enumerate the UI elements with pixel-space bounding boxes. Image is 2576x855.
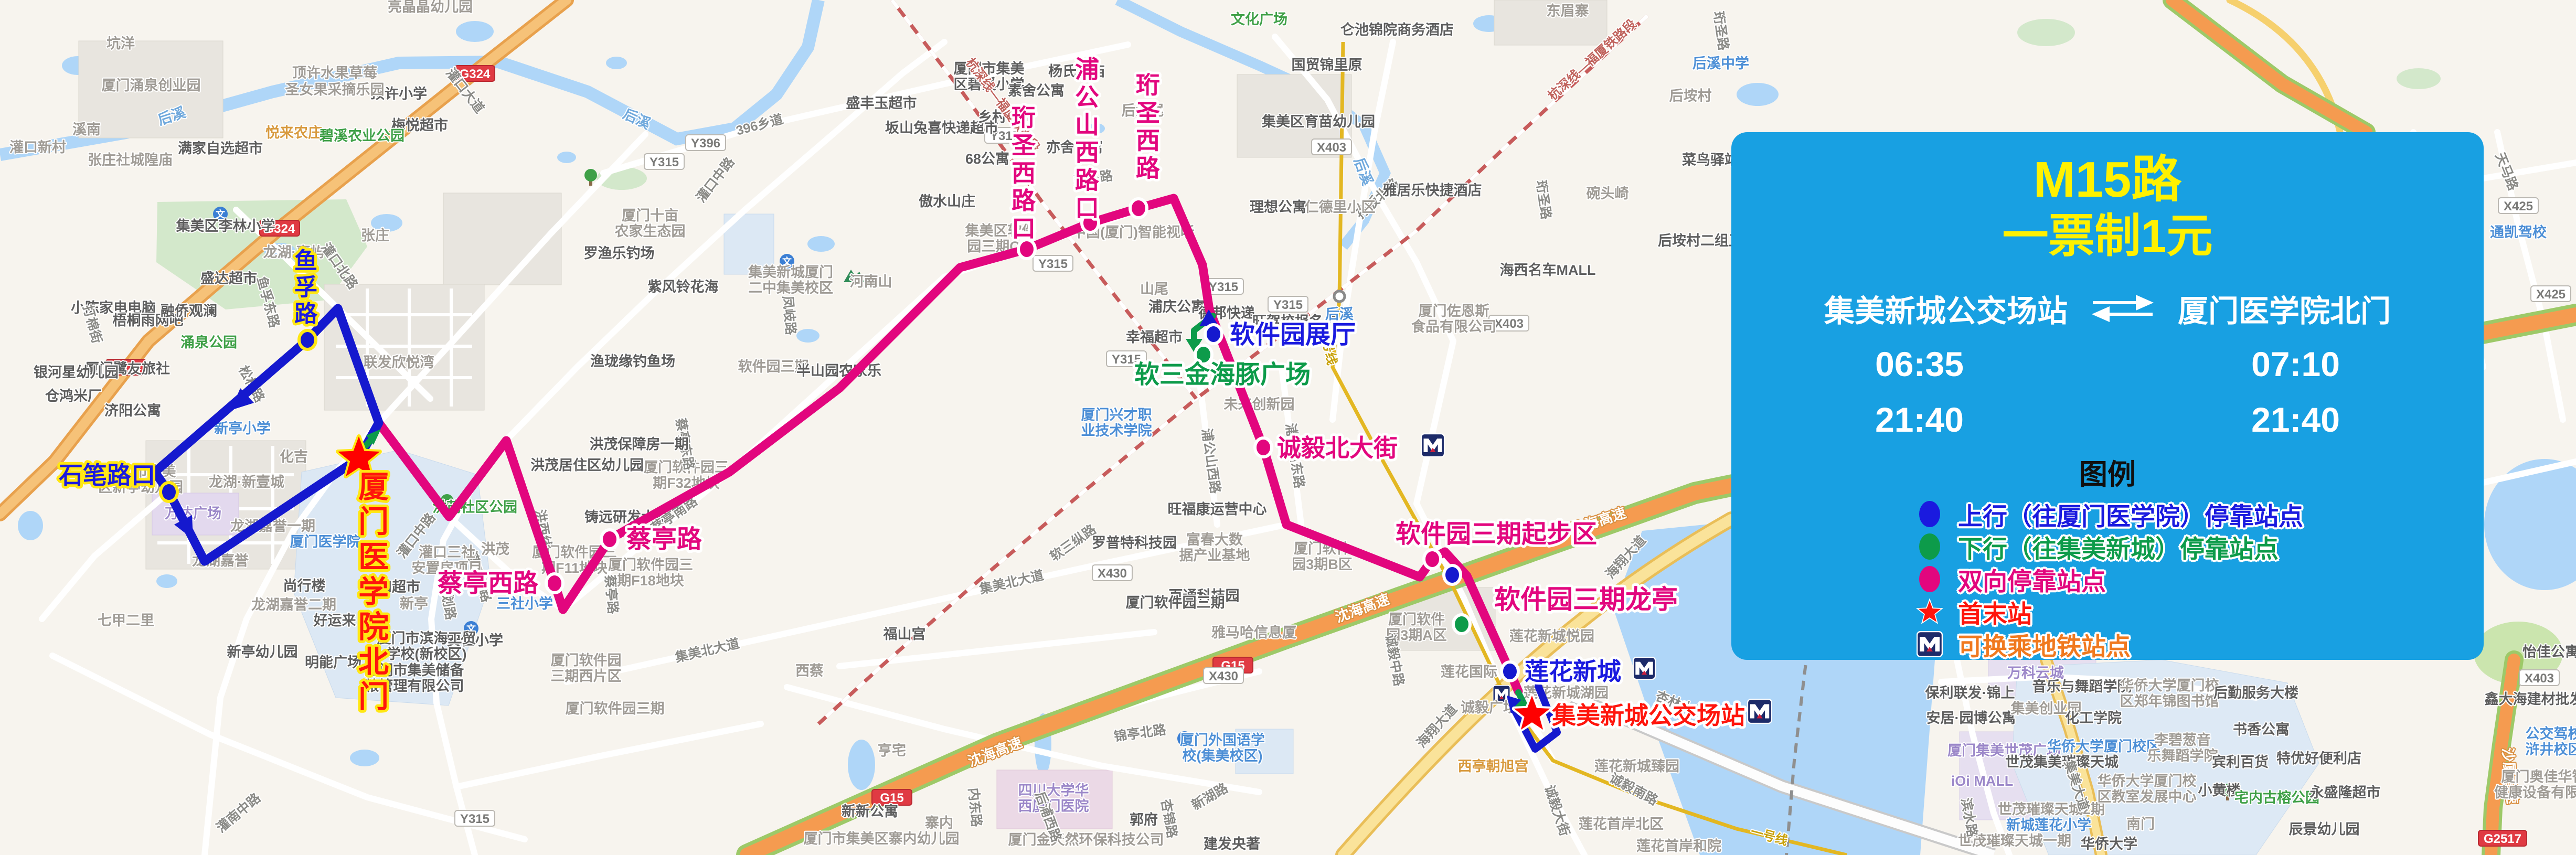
map-label: 三社小学	[496, 595, 553, 612]
map-label: 新亭幼儿园	[227, 644, 298, 660]
road-badge-text: Y315	[460, 812, 489, 826]
station-dot	[1444, 565, 1461, 584]
map-label: 后溪中学	[1693, 55, 1749, 71]
map-label: 音乐与舞蹈学院	[2032, 678, 2132, 694]
station-dot	[546, 574, 563, 593]
map-label: 济阳公寓	[104, 402, 161, 419]
map-label: 西亭朝旭宫	[1458, 758, 1529, 774]
station-label: 鱼孚路	[294, 248, 318, 327]
road-badge: X430	[1204, 668, 1243, 683]
map-label: 乐舞蹈学院	[2147, 747, 2218, 764]
legend-label: 双向停靠站点	[1958, 561, 2106, 597]
map-label: 圣女果采摘乐园	[285, 81, 385, 98]
map-label: 傲水山庄	[919, 193, 975, 209]
map-label: 集美区李林小学	[176, 218, 275, 234]
map-label: 三期西片区	[551, 668, 622, 684]
map-label: 罗普特科技园	[1092, 535, 1177, 551]
map-label: 厦门软件	[1388, 612, 1445, 627]
map-label: 后溪	[1325, 306, 1354, 322]
station-dot	[1453, 615, 1470, 634]
map-label: iOi MALL	[1951, 773, 2013, 789]
map-label: 素舍公寓	[1008, 82, 1065, 99]
map-label: 宅内古榕公园	[2234, 789, 2319, 806]
road-badge: X425	[2531, 286, 2571, 302]
map-label: 仁德里小区	[1305, 199, 1376, 215]
station-label: 软件园三期龙亭	[1494, 585, 1678, 614]
road-badge: X430	[1092, 565, 1132, 581]
map-label: 鑫大海建材批发	[2485, 691, 2576, 707]
map-label: 新亭	[400, 595, 428, 612]
map-label: 化工学院	[2065, 710, 2122, 726]
road-badge-text: Y315	[1209, 280, 1238, 294]
station-label: 莲花新城	[1525, 658, 1621, 685]
map-label: 涌泉公园	[180, 334, 237, 350]
map-label: 华侨大学厦门校区	[2047, 738, 2160, 754]
map-label: 区郑年锦图书馆	[2120, 693, 2219, 709]
legend-label: 下行（往集美新城）停靠站点	[1958, 529, 2279, 565]
map-label: 永盛隆超市	[2309, 784, 2381, 800]
map-label: 洪茂保障房一期	[590, 436, 689, 452]
map-label: 菜鸟驿站	[1681, 152, 1739, 168]
map-label: 特优好便利店	[2276, 751, 2361, 766]
map-label: 旺福康运营中心	[1168, 501, 1267, 517]
map-label: 怡佳公寓	[2522, 644, 2576, 660]
map-label: 渔珑缘钓鱼场	[590, 354, 675, 369]
map-label: 雅居乐快捷酒店	[1383, 183, 1482, 198]
map-label: 碧溪农业公园	[319, 128, 405, 144]
map-label: 龙湖·新壹城	[209, 474, 284, 490]
map-label: 碗头崎	[1587, 185, 1629, 201]
map-label: 坑洋	[107, 35, 135, 51]
road-badge-text: X403	[2525, 671, 2554, 686]
last-bus-left: 21:40	[1731, 400, 2107, 440]
station-dot	[1255, 438, 1272, 457]
road-badge-text: X403	[1494, 317, 1524, 331]
terminal-left-name: 集美新城公交场站	[1824, 286, 2068, 330]
map-label: 罗渔乐钓场	[584, 245, 655, 261]
road-badge: X425	[2498, 198, 2538, 213]
map-label: 仑池锦院商务酒店	[1340, 22, 1454, 38]
map-label: 宾利百货	[2212, 754, 2269, 770]
map-label: 洪茂居住区幼儿园	[530, 457, 644, 473]
map-label: 好运来	[313, 613, 356, 628]
map-label: 灌口新村	[9, 139, 66, 155]
map-label: 据产业基地	[1179, 548, 1250, 563]
map-label: 张庄社城隍庙	[88, 152, 173, 168]
legend-star-icon	[1916, 597, 1943, 626]
last-bus-right: 21:40	[2107, 400, 2484, 440]
station-dot	[601, 530, 618, 549]
road-badge-text: Y396	[691, 136, 720, 151]
map-label: 业技术学院	[1081, 422, 1152, 439]
legend-dot	[1919, 501, 1940, 527]
map-label: 李碧葱音	[2154, 732, 2211, 748]
legend-label: 上行（往厦门医学院）停靠站点	[1958, 496, 2303, 532]
map-label: 厦门医学院	[290, 533, 361, 550]
map-label: 辰景幼儿园	[2289, 821, 2360, 837]
road-badge-text: X430	[1098, 567, 1127, 581]
rail-station-icon	[1334, 291, 1345, 302]
map-label: 新新公寓	[842, 803, 898, 819]
map-label: 河南山	[850, 274, 892, 290]
map-label: 通凯驾校	[2490, 224, 2547, 240]
map-label: 未来创新园	[1224, 396, 1295, 412]
station-dot	[1424, 550, 1441, 569]
road-badge: Y315	[1033, 255, 1073, 271]
map-label: 世茂集美璀璨天城	[2005, 754, 2119, 770]
station-both: 浦公山西路口	[1075, 56, 1100, 232]
legend-list: 上行（往厦门医学院）停靠站点下行（往集美新城）停靠站点双向停靠站点首末站可换乘地…	[1916, 498, 2484, 660]
legend-item: 上行（往厦门医学院）停靠站点	[1916, 498, 2484, 530]
map-label: 莲花新城悦园	[1509, 628, 1594, 644]
station-label: 浦公山西路口	[1075, 56, 1100, 222]
map-label: 理想公寓	[1250, 199, 1306, 215]
map-label: 南门	[2126, 816, 2155, 832]
map-label: 银河星幼儿园	[34, 365, 119, 380]
road-badge-text: G2517	[2484, 832, 2521, 846]
map-label: 融侨观澜	[161, 303, 217, 319]
map-label: 浒井校区)	[2526, 741, 2576, 757]
station-label: 珩圣西路口	[1012, 104, 1036, 242]
route-name: M15路	[1731, 150, 2484, 209]
map-label: 龙湖嘉誉二期	[251, 597, 336, 613]
map-label: 四川大学华	[1018, 782, 1089, 798]
station-dot	[1018, 240, 1035, 259]
map-label: 明能广场	[305, 654, 361, 670]
legend-dot	[1919, 533, 1940, 560]
map-label: 雅马哈信息厦	[1211, 624, 1296, 640]
road-badge-text: X425	[2504, 199, 2533, 213]
first-bus-right: 07:10	[2107, 344, 2484, 384]
legend-item: 双向停靠站点	[1916, 563, 2484, 595]
legend-dot-icon	[1916, 501, 1943, 527]
map-label: 二中集美校区	[748, 280, 833, 296]
road-badge-text: X425	[2536, 287, 2566, 302]
map-label: 福山宫	[883, 626, 926, 642]
map-label: 联发欣悦湾	[364, 354, 434, 370]
legend-dot	[1919, 566, 1940, 592]
map-label: 保利联发·锦上	[1925, 685, 2015, 701]
station-label: 厦门医学院北门	[358, 470, 389, 714]
route-fare: 一票制1元	[1731, 209, 2484, 262]
map-label: 厦门软件园	[551, 653, 622, 668]
map-label: 后垵村	[1669, 88, 1712, 104]
map-label: 书香公寓	[2233, 721, 2290, 738]
map-label: 海西名车MALL	[1500, 262, 1596, 278]
legend-label: 可换乘地铁站点	[1958, 626, 2131, 662]
map-label: 莲花首岸和院	[1636, 838, 1721, 854]
map-label: 亨宅	[878, 742, 906, 758]
road-badge: X403	[1312, 139, 1351, 155]
map-label: 顶许水果草莓	[292, 65, 377, 81]
road-badge-text: G15	[880, 791, 903, 805]
map-label: 莲花国际	[1441, 664, 1497, 680]
road-badge: Y315	[1268, 296, 1308, 312]
station-dot	[1502, 662, 1518, 681]
map-label: 厦门奥佳华智能	[2502, 768, 2576, 785]
metro-icon	[1633, 657, 1655, 679]
map-label: 公交驾校(	[2526, 725, 2576, 742]
station-label: 软件园三期起步区	[1396, 520, 1597, 548]
map-label: 68公寓	[965, 151, 1009, 167]
map-label: 厦门软件园三期	[566, 701, 665, 717]
timetable: 06:35 07:10 21:40 21:40	[1731, 344, 2484, 440]
map-label: 浦庆公寓	[1148, 298, 1205, 315]
legend-dot-icon	[1916, 566, 1943, 592]
map-label: 农家生态园	[614, 223, 686, 239]
road-badge: G15	[872, 789, 912, 805]
road-badge-text: X430	[1209, 669, 1238, 683]
station-both: 珩圣西路口	[1012, 104, 1036, 259]
map-label: 园3期B区	[1292, 557, 1353, 572]
map-label: 盛丰玉超市	[846, 95, 917, 111]
map-label: 厦门佐恩斯	[1419, 303, 1489, 319]
map-label: 莲花首岸北区	[1579, 816, 1664, 832]
map-label: 西蔡	[795, 663, 824, 679]
legend-dot-icon	[1916, 533, 1943, 560]
terminal-right-name: 厦门医学院北门	[2178, 286, 2391, 330]
map-label: 东眉寨	[1547, 3, 1589, 19]
map-label: 山尾	[1140, 281, 1168, 297]
road-badge-text: X403	[1317, 141, 1346, 155]
map-label: 文化广场	[1231, 11, 1287, 27]
map-label: 华侨大学厦门校	[2098, 773, 2197, 789]
map-label: 满家自选超市	[178, 140, 263, 156]
station-label: 石笔路口	[59, 462, 155, 489]
map-label: 厦门市集美区寨内幼儿园	[804, 830, 960, 847]
station-label: 蔡亭西路	[438, 570, 539, 597]
station-label: 软三金海豚广场	[1134, 361, 1311, 389]
metro-icon	[1421, 434, 1444, 457]
station-label: 诚毅北大街	[1277, 434, 1398, 462]
legend-label: 首末站	[1958, 594, 2032, 630]
legend-item: 下行（往集美新城）停靠站点	[1916, 530, 2484, 563]
map-label: 厦门软件园三	[608, 557, 693, 573]
map-label: 厦门涌泉创业园	[102, 77, 201, 93]
map-label: 学校(新校区)	[387, 646, 467, 662]
station-label: 珩圣西路	[1136, 71, 1161, 182]
map-label: 悦来农庄	[265, 124, 322, 141]
two-way-arrows-icon	[2089, 292, 2157, 325]
map-label: 郭府	[1130, 811, 1158, 828]
map-label: 仓鸿米厂	[45, 388, 102, 404]
legend-item: 可换乘地铁站点	[1916, 628, 2484, 660]
map-label: 厦门软件园三期	[1126, 595, 1225, 611]
metro-icon	[1748, 699, 1772, 723]
legend-metro-icon	[1916, 631, 1943, 657]
map-label: 安居·园博公寓	[1926, 710, 2016, 726]
map-label: 厦门金天然环保科技公司	[1008, 831, 1164, 848]
map-label: 厦门兴才职	[1081, 407, 1152, 423]
terminals-row: 集美新城公交场站 厦门医学院北门	[1731, 286, 2484, 330]
map-label: 集美新城厦门	[748, 264, 833, 280]
route-info-panel: M15路 一票制1元 集美新城公交场站 厦门医学院北门 06:35 07:10 …	[1731, 132, 2484, 660]
map-label: 新亭小学	[214, 420, 271, 436]
map-label: 尚行楼	[283, 578, 326, 594]
map-label: 紫风铃花海	[648, 279, 719, 295]
map-label: 厦门市滨海工贸	[377, 630, 476, 646]
map-label: 洪茂	[481, 541, 509, 557]
map-label: 食品有限公司	[1411, 318, 1496, 335]
map-label: 厦门十亩	[622, 207, 678, 223]
map-label: 华侨大学厦门校	[2120, 677, 2219, 693]
map-label: 华侨大学	[2081, 836, 2137, 852]
road-badge-text: Y315	[1273, 298, 1303, 312]
map-label: 校(集美校区)	[1183, 747, 1263, 764]
station-label: 蔡亭路	[626, 526, 702, 553]
map-label: 厦门外国语学	[1180, 732, 1265, 748]
road-badge-text: Y315	[1038, 257, 1068, 271]
map-label: 后勤服务大楼	[2213, 685, 2298, 701]
map-label: 健康设备有限公司	[2494, 784, 2576, 800]
map-label: 灌口三社	[419, 544, 475, 560]
map-label: 化吉	[280, 449, 308, 465]
map-label: 富春大数	[1186, 531, 1243, 548]
map-label: 集美区育苗幼儿园	[1261, 113, 1375, 130]
road-badge: X403	[2519, 670, 2559, 686]
map-label: 区教室发展中心	[2098, 788, 2197, 805]
map-label: 张庄	[361, 227, 389, 243]
station-dot	[299, 330, 316, 349]
map-label: 寨内	[925, 815, 953, 831]
first-bus-left: 06:35	[1731, 344, 2107, 384]
tree-crown	[584, 169, 597, 181]
station-dot	[1205, 325, 1222, 344]
station-dot	[161, 483, 177, 501]
station-label: 集美新城公交场站	[1551, 702, 1745, 729]
map-label: 盛达超市	[200, 270, 257, 286]
map-label: 亮晶晶幼儿园	[388, 0, 473, 15]
legend-item: 首末站	[1916, 595, 2484, 628]
map-label: 幸福超市	[1126, 329, 1183, 345]
road-badge-text: Y315	[650, 155, 679, 169]
map-label: 国贸锦里原	[1292, 57, 1362, 73]
map-label: 七甲二里	[98, 613, 154, 628]
legend-title: 图例	[1731, 451, 2484, 493]
station-dot	[1130, 199, 1147, 218]
road-badge: Y396	[686, 135, 726, 151]
road-badge: G2517	[2478, 830, 2527, 846]
road-badge: Y315	[455, 810, 495, 826]
map-label: 溪南	[72, 122, 101, 137]
map-label: 建发央著	[1204, 836, 1260, 852]
map-label: 期F18地块	[617, 573, 685, 589]
map-label: 新城莲花小学	[2006, 817, 2091, 833]
station-label: 软件园展厅	[1230, 321, 1356, 349]
bus-route-map-poster: G324G324G324G15G15G2517Y396Y315Y315Y315Y…	[0, 0, 2576, 855]
road-badge: Y315	[644, 154, 684, 169]
map-label: 莲花新城臻园	[1594, 758, 1679, 774]
